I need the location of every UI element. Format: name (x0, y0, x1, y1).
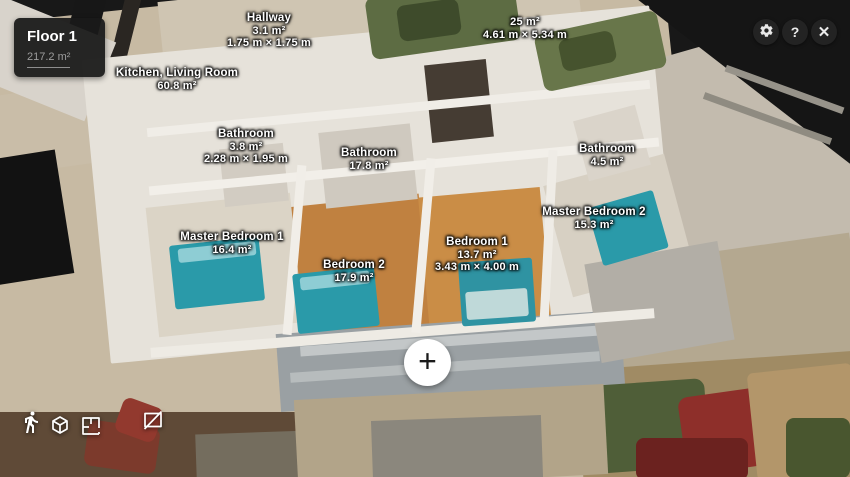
walk-icon (19, 421, 43, 438)
floorplan-view-button[interactable] (79, 414, 103, 438)
scene-garden (636, 438, 748, 477)
close-button[interactable]: ✕ (811, 19, 837, 45)
dollhouse-view-button[interactable] (48, 413, 72, 437)
settings-button[interactable] (753, 19, 779, 45)
floorplan-icon (79, 425, 103, 442)
walk-mode-button[interactable] (19, 410, 43, 434)
scene-bed-blanket (465, 288, 529, 320)
question-mark-icon: ? (791, 24, 800, 40)
floor-area: 217.2 m² (27, 51, 70, 68)
scene-patch (371, 415, 543, 477)
floor-title: Floor 1 (27, 29, 91, 45)
plus-icon: + (418, 346, 437, 376)
dollhouse-3d-scene[interactable] (0, 0, 850, 477)
floor-selector[interactable]: Floor 1 217.2 m² (14, 18, 105, 77)
close-icon: ✕ (818, 23, 831, 41)
viewer-window: Hallway 3.1 m² 1.75 m × 1.75 m 25 m² 4.6… (0, 0, 850, 477)
no-media-icon (141, 419, 165, 436)
dollhouse-icon (48, 424, 72, 441)
media-toggle-button[interactable] (141, 408, 165, 432)
scene-garden (786, 418, 850, 477)
help-button[interactable]: ? (782, 19, 808, 45)
add-button[interactable]: + (404, 339, 451, 386)
gear-icon (759, 23, 774, 41)
